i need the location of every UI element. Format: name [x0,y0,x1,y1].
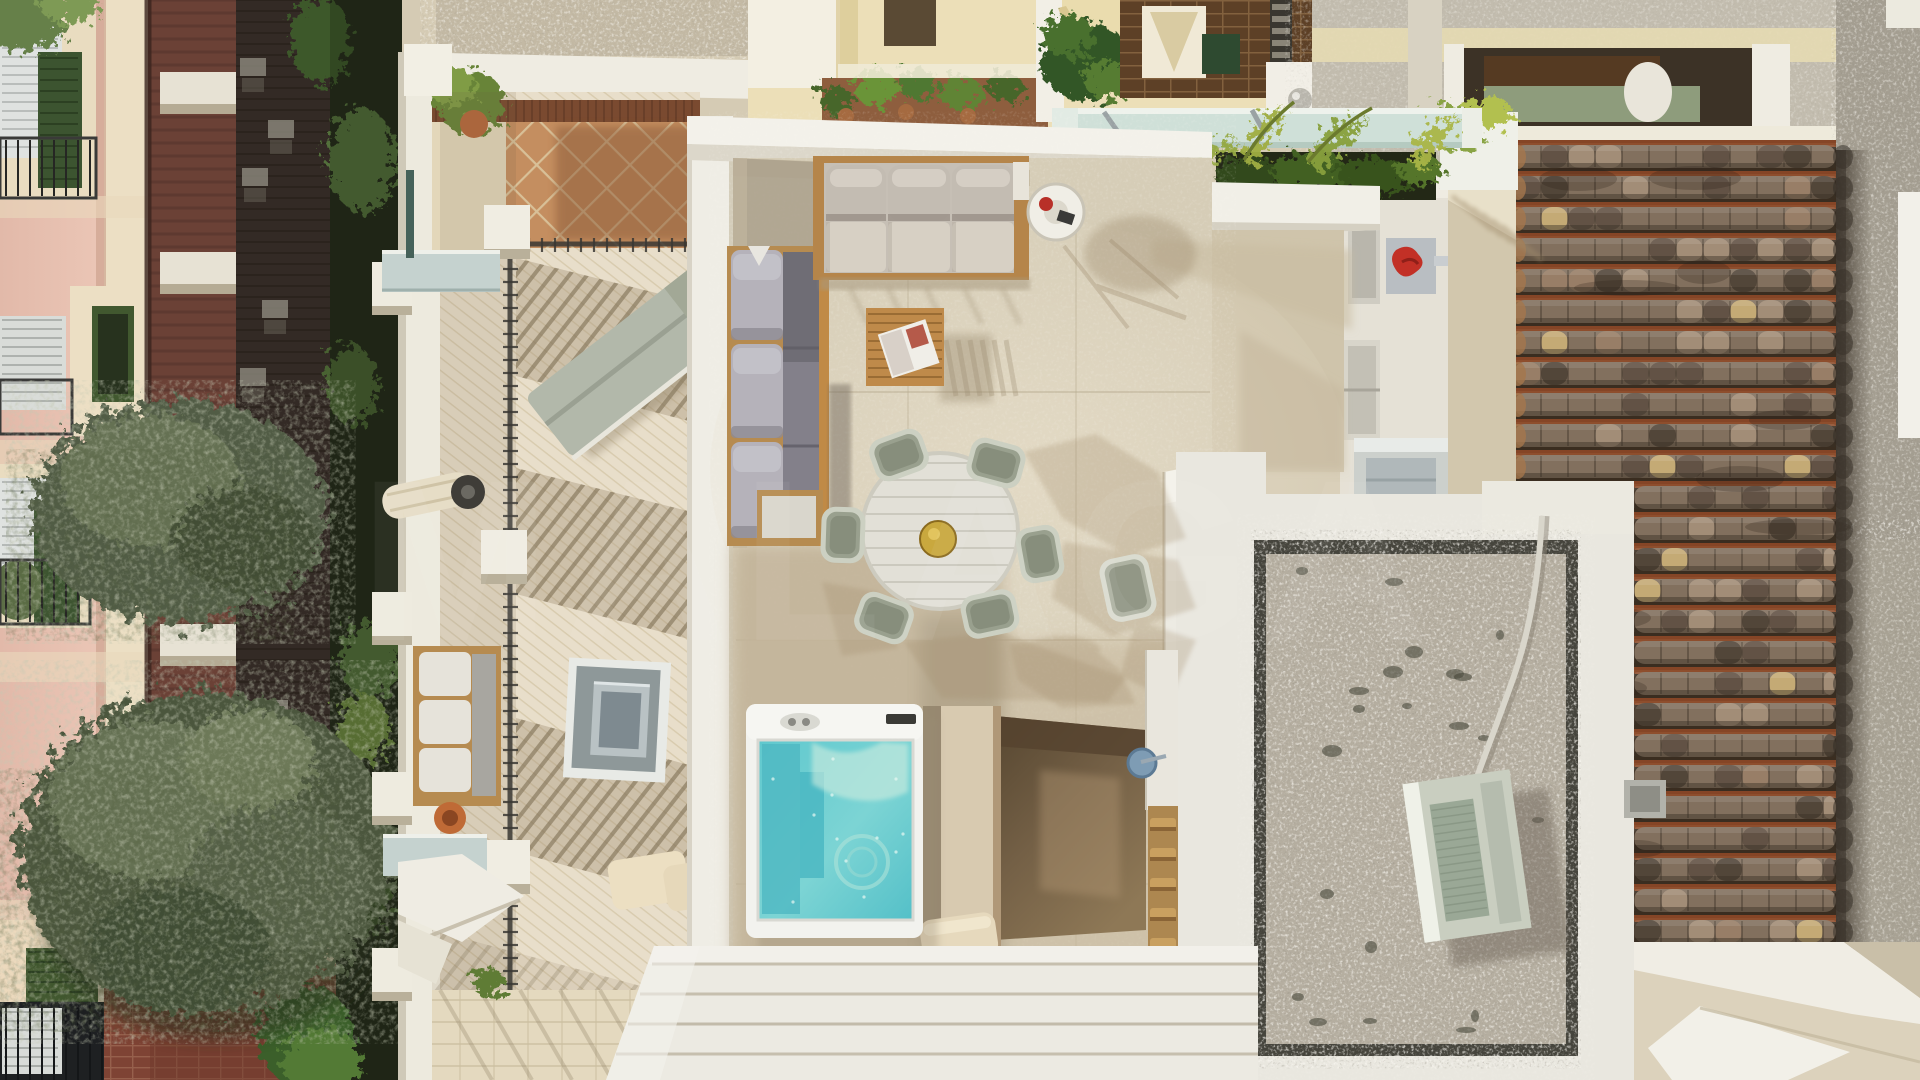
svg-text:MALAGA: MALAGA [359,432,1440,689]
